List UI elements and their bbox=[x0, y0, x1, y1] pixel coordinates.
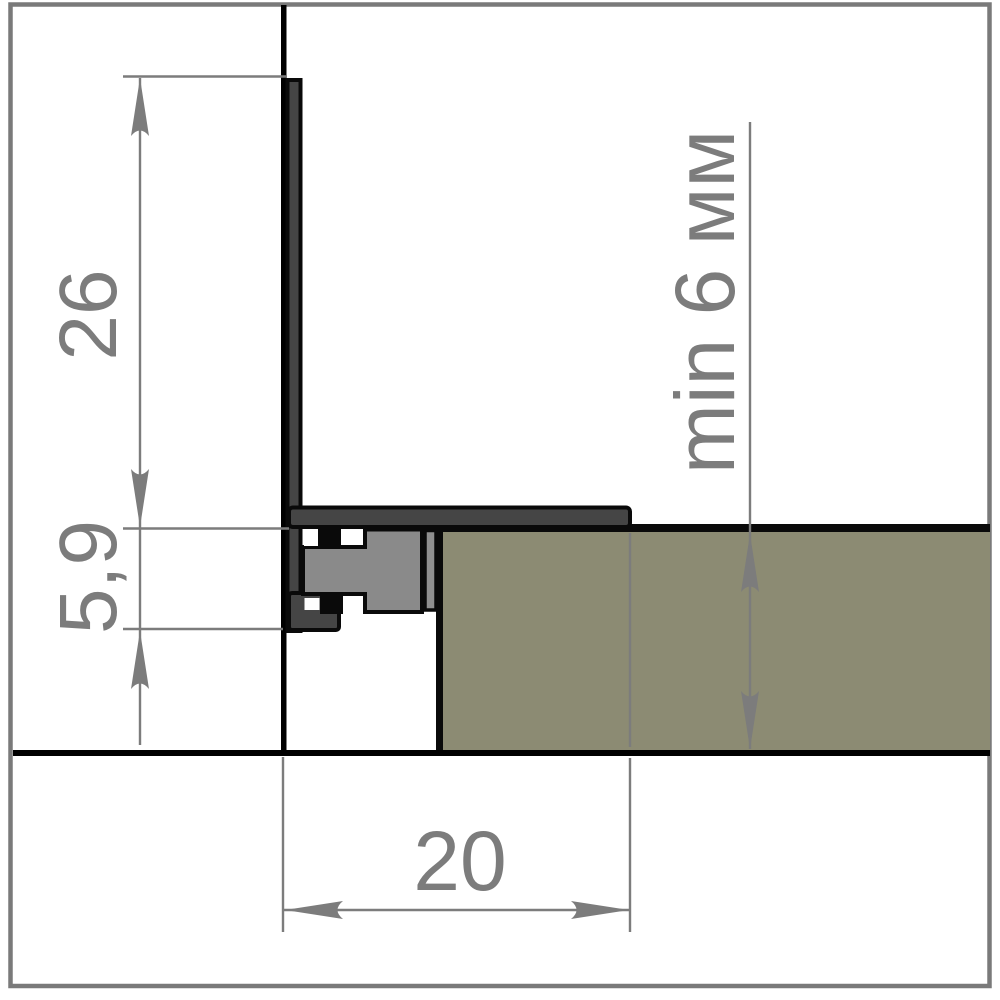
profile-notch-top-left bbox=[304, 533, 318, 546]
arrow-right-icon bbox=[571, 901, 629, 919]
arrow-left-icon bbox=[285, 901, 343, 919]
profile-end-strip bbox=[425, 531, 436, 611]
dimension-26: 26 bbox=[43, 77, 287, 528]
tile-panel-surface bbox=[443, 530, 990, 751]
profile-section-drawing: 26 5,9 min 6 мм 20 bbox=[0, 0, 1000, 1000]
arrow-down-icon bbox=[131, 469, 149, 527]
arrow-up-icon bbox=[131, 78, 149, 136]
dimension-label-26: 26 bbox=[43, 269, 134, 360]
profile-notch-bottom bbox=[305, 598, 320, 610]
technical-drawing-page: 26 5,9 min 6 мм 20 bbox=[0, 0, 1000, 1000]
arrow-up-icon bbox=[131, 631, 149, 689]
dimension-5-9: 5,9 bbox=[43, 520, 289, 745]
tile-panel bbox=[436, 524, 990, 756]
profile-notch-top-right bbox=[342, 531, 361, 545]
dimension-label-min-6mm: min 6 мм bbox=[658, 130, 752, 474]
dimension-label-5-9: 5,9 bbox=[43, 520, 134, 634]
profile-tooth-top bbox=[318, 527, 341, 549]
profile-tooth-bottom bbox=[320, 592, 343, 614]
profile-flange bbox=[289, 508, 630, 528]
floor-line bbox=[13, 750, 990, 756]
dimension-label-20: 20 bbox=[413, 814, 506, 908]
profile-vertical-leg bbox=[288, 80, 301, 631]
